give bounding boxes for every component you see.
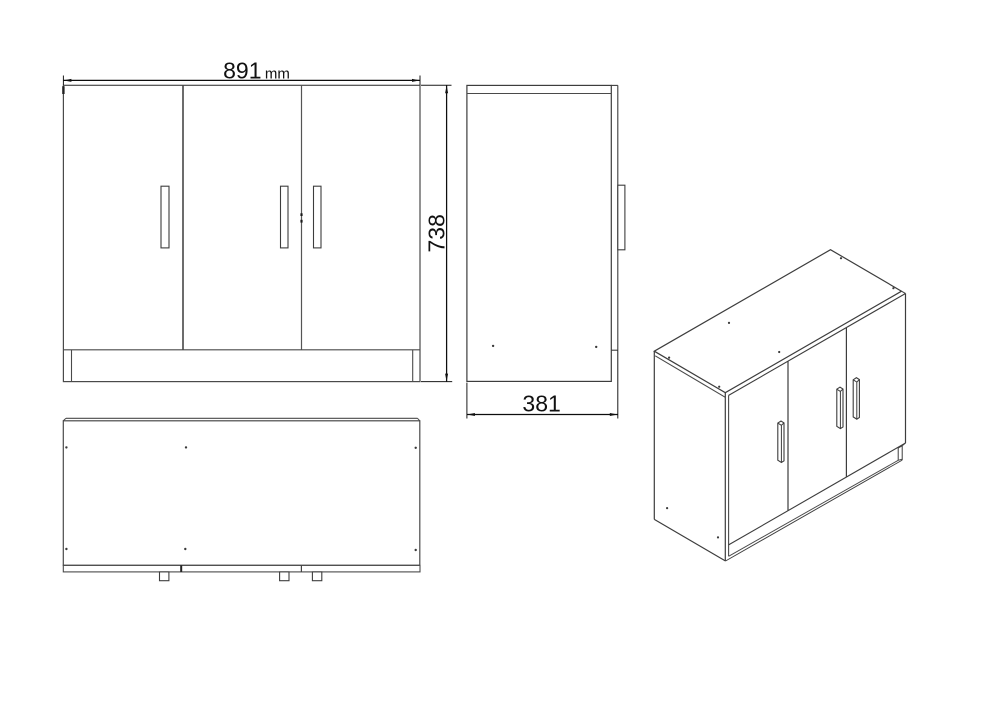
svg-text:381: 381 <box>522 391 560 417</box>
svg-text:738: 738 <box>424 214 450 252</box>
svg-text:mm: mm <box>265 65 290 82</box>
svg-text:891: 891 <box>223 57 261 83</box>
